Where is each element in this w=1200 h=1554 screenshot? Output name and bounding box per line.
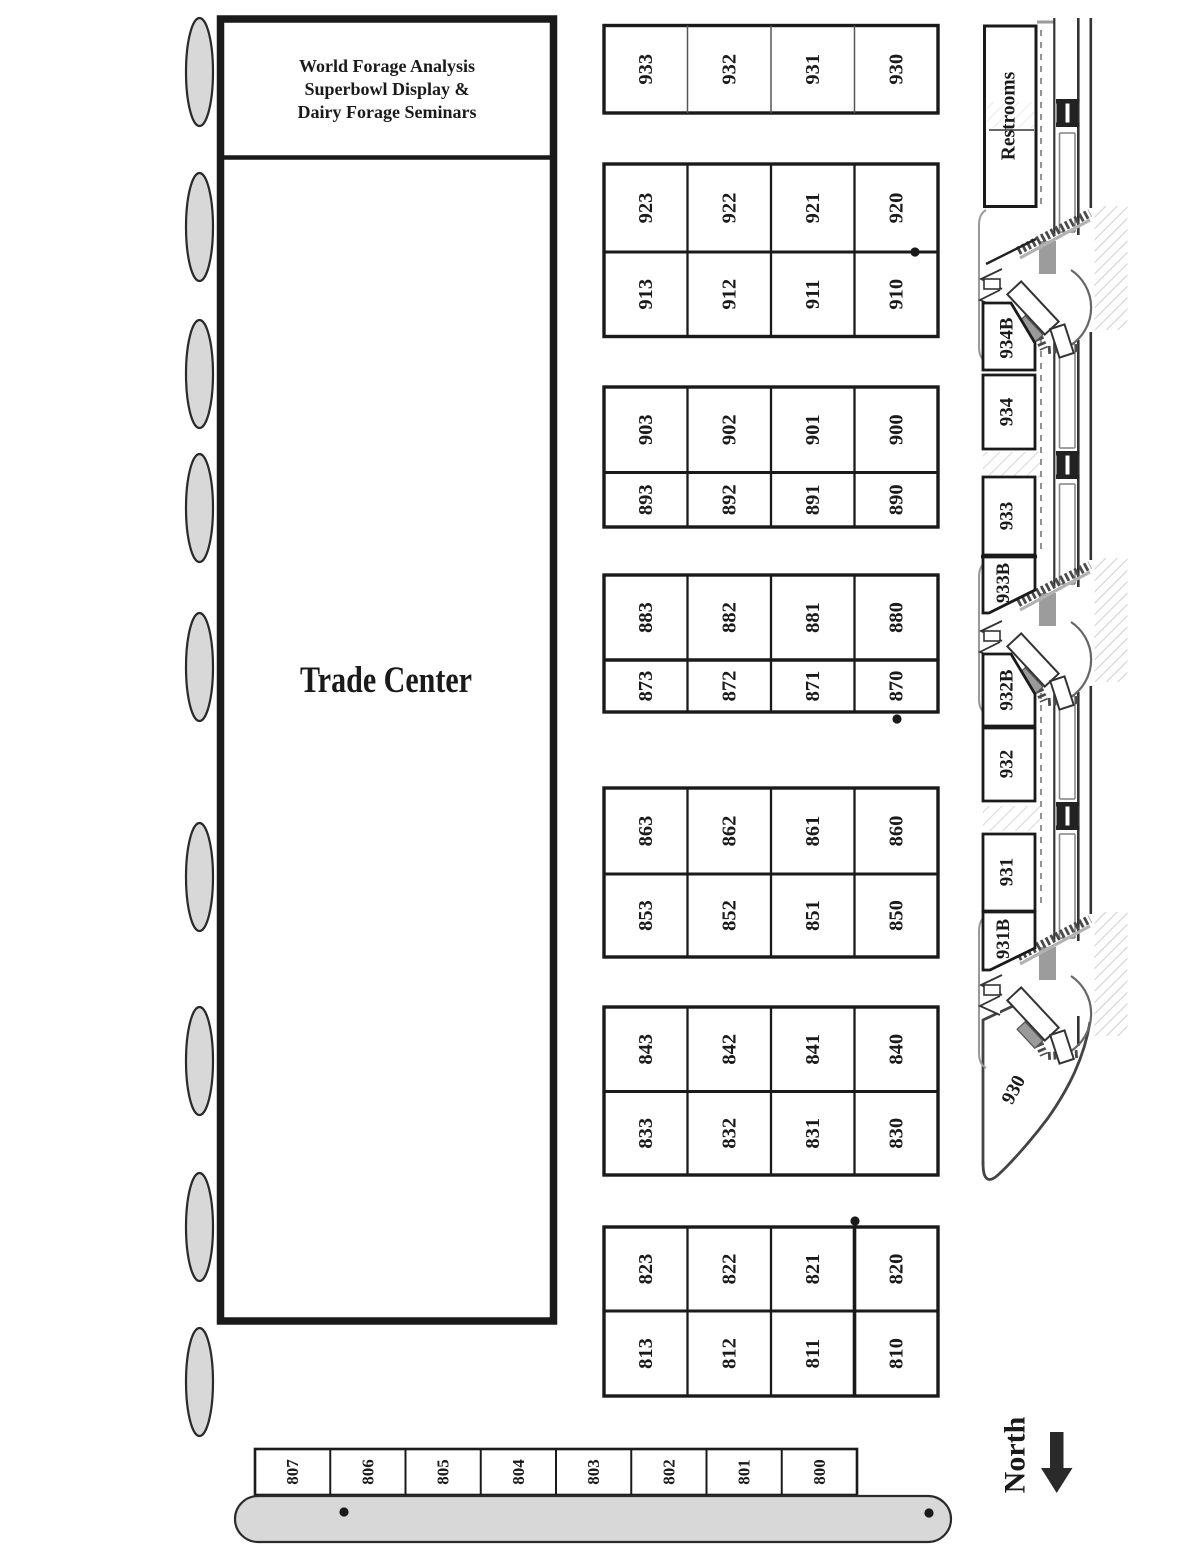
svg-text:934: 934	[997, 397, 1018, 426]
svg-text:913: 913	[635, 279, 657, 310]
svg-text:861: 861	[802, 816, 824, 847]
svg-text:930: 930	[885, 54, 907, 85]
svg-text:822: 822	[718, 1254, 740, 1285]
svg-text:807: 807	[283, 1459, 302, 1485]
svg-text:805: 805	[434, 1459, 453, 1485]
svg-text:832: 832	[718, 1118, 740, 1149]
svg-text:840: 840	[885, 1034, 907, 1065]
svg-text:873: 873	[635, 671, 657, 702]
svg-text:Superbowl Display &: Superbowl Display &	[304, 79, 469, 99]
svg-text:812: 812	[718, 1338, 740, 1369]
svg-text:810: 810	[885, 1338, 907, 1369]
svg-text:882: 882	[718, 602, 740, 633]
svg-text:902: 902	[718, 414, 740, 445]
svg-text:862: 862	[718, 816, 740, 847]
svg-text:842: 842	[718, 1034, 740, 1065]
svg-text:934B: 934B	[997, 317, 1018, 359]
svg-text:Dairy Forage Seminars: Dairy Forage Seminars	[298, 102, 477, 122]
svg-text:933: 933	[997, 502, 1018, 531]
svg-text:801: 801	[735, 1459, 754, 1485]
svg-text:891: 891	[802, 484, 824, 515]
svg-text:843: 843	[635, 1034, 657, 1065]
svg-text:813: 813	[635, 1338, 657, 1369]
svg-text:811: 811	[802, 1339, 824, 1369]
svg-text:911: 911	[802, 279, 824, 309]
svg-text:804: 804	[509, 1459, 528, 1485]
svg-text:931: 931	[997, 858, 1018, 887]
svg-text:871: 871	[802, 671, 824, 702]
svg-text:802: 802	[659, 1459, 678, 1485]
svg-text:841: 841	[802, 1034, 824, 1065]
svg-text:853: 853	[635, 900, 657, 931]
svg-text:901: 901	[802, 414, 824, 445]
svg-text:World Forage Analysis: World Forage Analysis	[299, 56, 475, 76]
svg-text:820: 820	[885, 1254, 907, 1285]
svg-text:North: North	[999, 1416, 1032, 1493]
svg-text:890: 890	[885, 484, 907, 515]
svg-text:921: 921	[802, 193, 824, 224]
svg-text:912: 912	[718, 279, 740, 310]
svg-text:850: 850	[885, 900, 907, 931]
svg-text:932: 932	[997, 750, 1018, 779]
svg-text:851: 851	[802, 900, 824, 931]
svg-text:872: 872	[718, 671, 740, 702]
svg-text:932: 932	[718, 54, 740, 85]
svg-text:893: 893	[635, 484, 657, 515]
svg-text:Trade Center: Trade Center	[300, 660, 472, 701]
svg-text:852: 852	[718, 900, 740, 931]
svg-text:806: 806	[358, 1459, 377, 1485]
svg-text:910: 910	[885, 279, 907, 310]
svg-text:880: 880	[885, 602, 907, 633]
svg-text:863: 863	[635, 816, 657, 847]
svg-text:821: 821	[802, 1254, 824, 1285]
svg-text:803: 803	[584, 1459, 603, 1485]
svg-text:Restrooms: Restrooms	[999, 71, 1020, 160]
svg-text:860: 860	[885, 816, 907, 847]
svg-text:823: 823	[635, 1254, 657, 1285]
svg-text:933: 933	[635, 54, 657, 85]
svg-text:892: 892	[718, 484, 740, 515]
svg-text:830: 830	[885, 1118, 907, 1149]
svg-text:831: 831	[802, 1118, 824, 1149]
svg-text:881: 881	[802, 602, 824, 633]
svg-text:903: 903	[635, 414, 657, 445]
svg-text:931: 931	[802, 54, 824, 85]
svg-text:920: 920	[885, 193, 907, 224]
svg-text:900: 900	[885, 414, 907, 445]
svg-text:883: 883	[635, 602, 657, 633]
svg-text:932B: 932B	[997, 669, 1018, 711]
svg-text:931B: 931B	[994, 919, 1014, 959]
svg-text:933B: 933B	[994, 563, 1014, 603]
svg-text:800: 800	[810, 1459, 829, 1485]
svg-text:833: 833	[635, 1118, 657, 1149]
svg-text:923: 923	[635, 193, 657, 224]
svg-text:870: 870	[885, 671, 907, 702]
svg-text:922: 922	[718, 193, 740, 224]
